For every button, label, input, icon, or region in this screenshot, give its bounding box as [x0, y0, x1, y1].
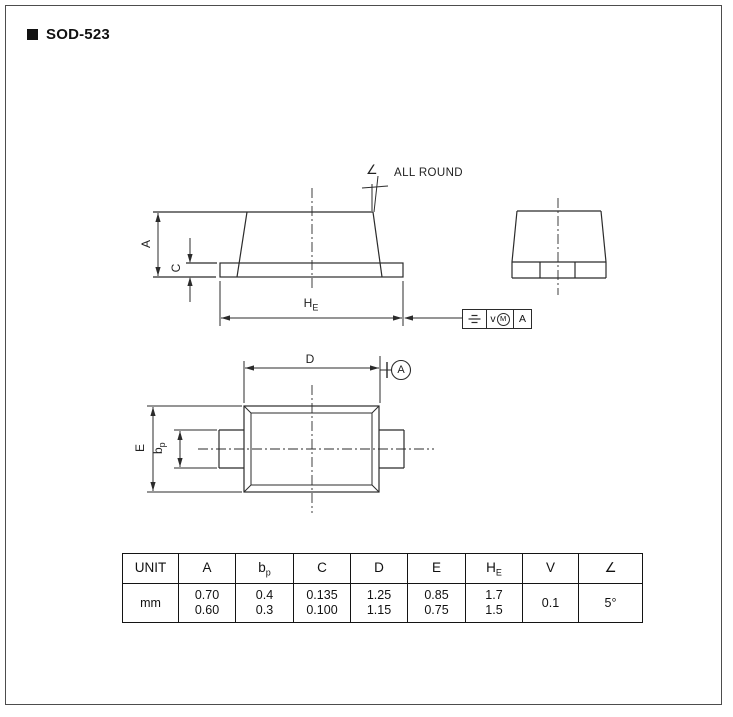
cell-v: 0.1	[523, 584, 579, 623]
cell-a: 0.700.60	[179, 584, 236, 623]
dim-label-c: C	[169, 258, 183, 278]
cell-d: 1.251.15	[351, 584, 408, 623]
datum-a-label: A	[394, 363, 408, 377]
fcf-tolerance-cell: v M	[486, 310, 514, 328]
table-data-row: mm 0.700.60 0.40.3 0.1350.100 1.251.15 0…	[123, 584, 643, 623]
cell-e: 0.850.75	[408, 584, 466, 623]
cell-he: 1.71.5	[466, 584, 523, 623]
header-angle: ∠	[579, 554, 643, 584]
header-bp: bp	[236, 554, 294, 584]
dim-label-he: HE	[296, 296, 326, 314]
cell-bp: 0.40.3	[236, 584, 294, 623]
header-e: E	[408, 554, 466, 584]
dimension-table: UNIT A bp C D E HE V ∠ mm 0.700.60 0.40.…	[122, 553, 643, 623]
cell-angle: 5°	[579, 584, 643, 623]
header-c: C	[294, 554, 351, 584]
header-d: D	[351, 554, 408, 584]
top-view-linework	[147, 356, 434, 513]
all-round-label: ALL ROUND	[394, 167, 463, 179]
end-view-linework	[512, 198, 606, 295]
mmc-modifier-icon: M	[497, 313, 510, 326]
cell-unit: mm	[123, 584, 179, 623]
package-outline-drawing-page: SOD-523	[0, 0, 733, 717]
table-header-row: UNIT A bp C D E HE V ∠	[123, 554, 643, 584]
draft-angle-icon: ∠	[366, 162, 378, 178]
feature-control-frame: v M A	[462, 309, 532, 329]
dim-label-e: E	[133, 438, 147, 458]
fcf-datum-cell: A	[514, 310, 531, 328]
dim-label-bp: bp	[151, 436, 169, 460]
header-unit: UNIT	[123, 554, 179, 584]
header-a: A	[179, 554, 236, 584]
dim-label-d: D	[300, 352, 320, 366]
dim-label-a: A	[139, 234, 153, 254]
header-he: HE	[466, 554, 523, 584]
header-v: V	[523, 554, 579, 584]
fcf-tolerance-value: v	[490, 313, 495, 325]
cell-c: 0.1350.100	[294, 584, 351, 623]
symmetry-icon	[463, 310, 486, 328]
